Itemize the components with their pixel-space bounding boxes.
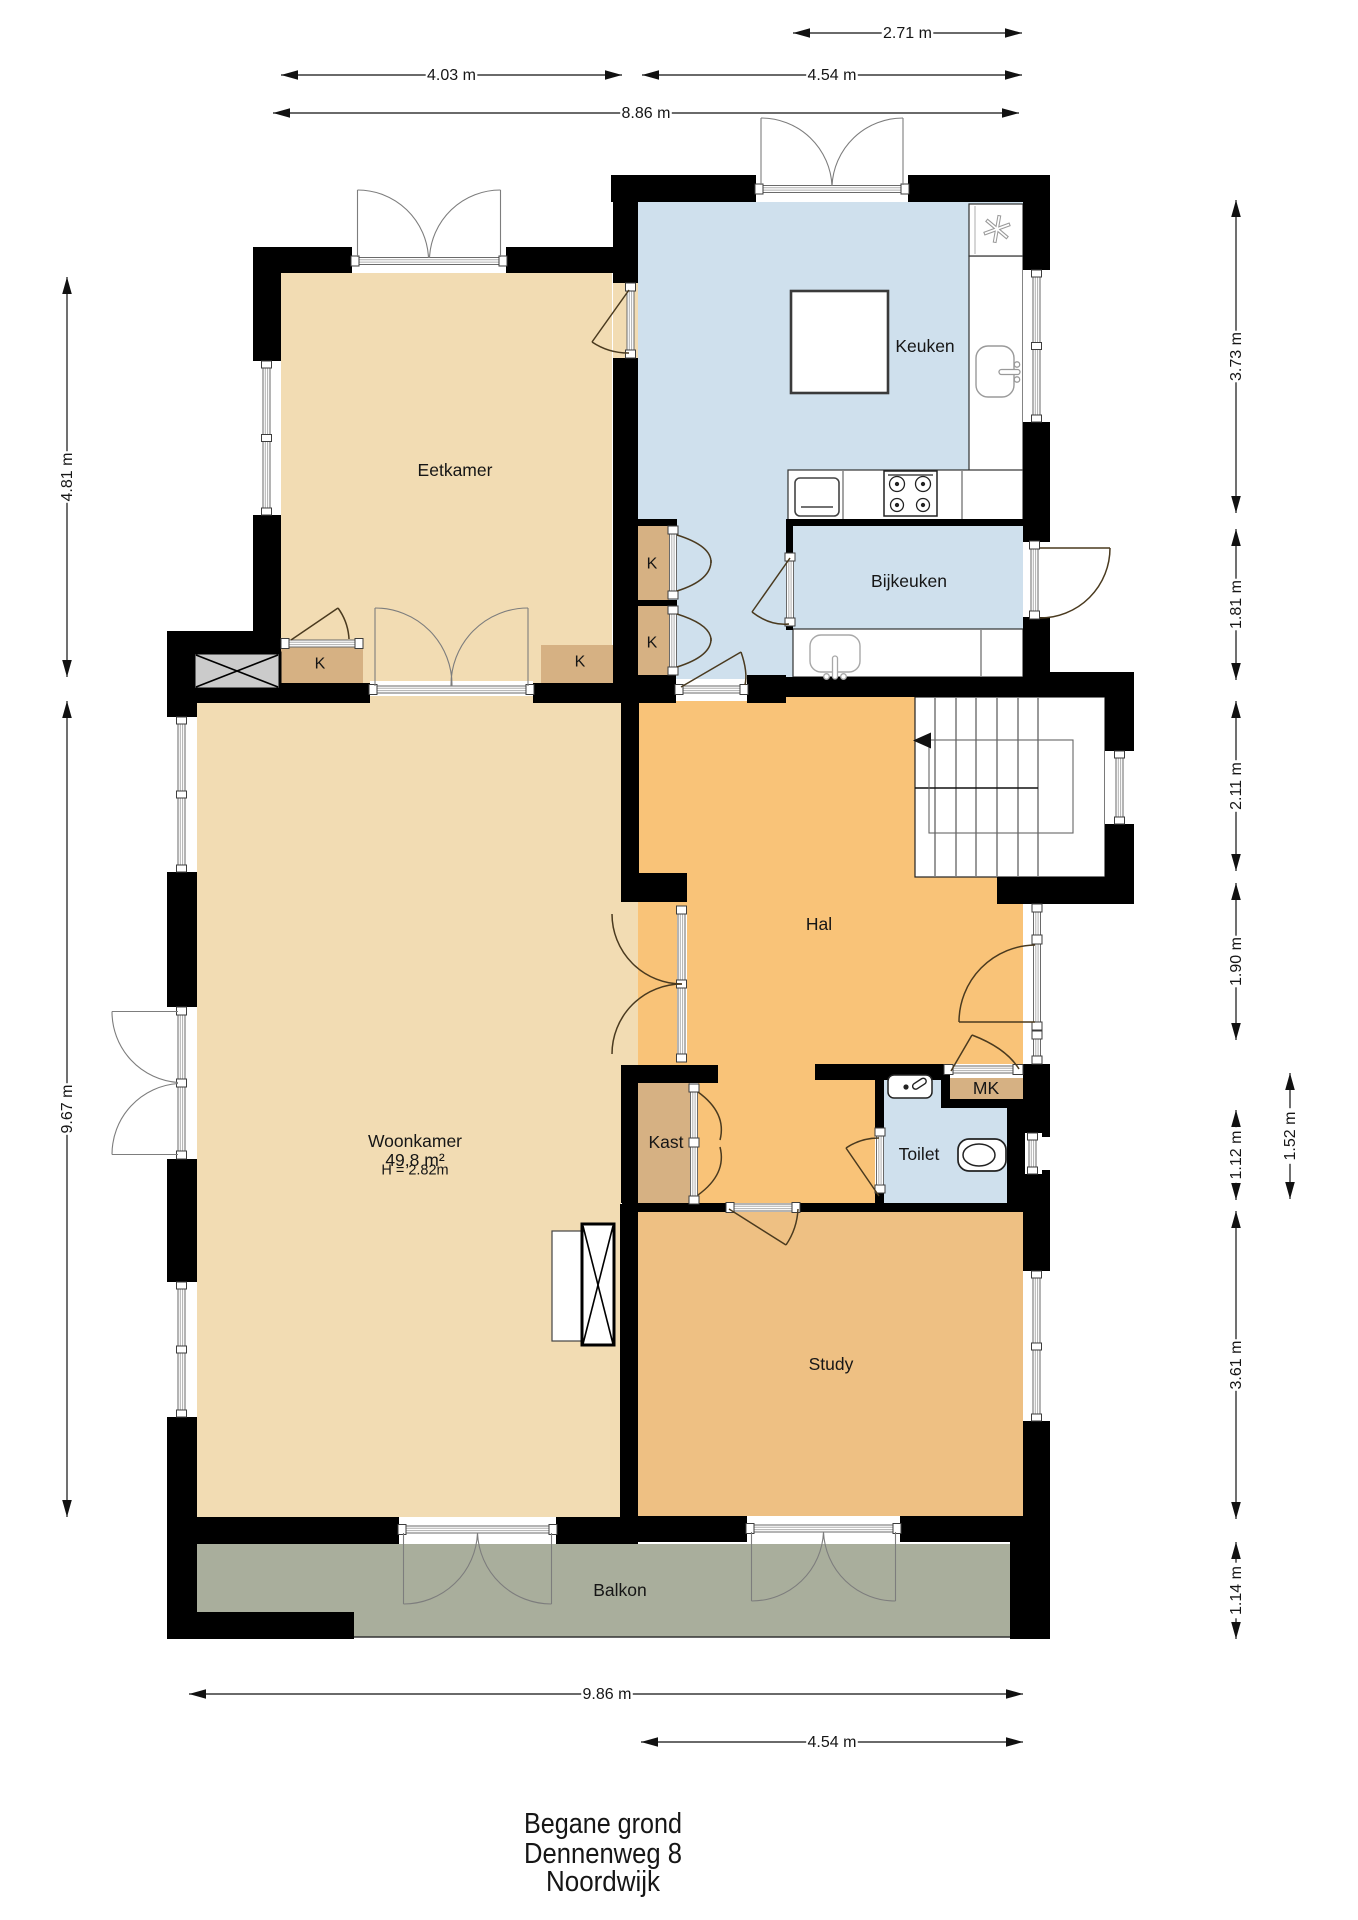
svg-text:Hal: Hal bbox=[806, 914, 832, 934]
svg-text:1.12 m: 1.12 m bbox=[1228, 1131, 1245, 1180]
svg-text:3.61 m: 3.61 m bbox=[1228, 1341, 1245, 1390]
svg-text:Woonkamer: Woonkamer bbox=[368, 1131, 462, 1151]
svg-text:H = 2.82m: H = 2.82m bbox=[381, 1163, 448, 1179]
svg-text:4.54 m: 4.54 m bbox=[808, 67, 857, 84]
svg-text:Study: Study bbox=[809, 1354, 854, 1374]
svg-text:K: K bbox=[315, 656, 326, 673]
svg-text:1.81 m: 1.81 m bbox=[1228, 580, 1245, 629]
svg-text:Keuken: Keuken bbox=[895, 336, 954, 356]
svg-text:4.81 m: 4.81 m bbox=[59, 453, 76, 502]
svg-text:Kast: Kast bbox=[648, 1132, 683, 1152]
svg-text:Noordwijk: Noordwijk bbox=[546, 1866, 660, 1898]
svg-text:K: K bbox=[647, 556, 658, 573]
svg-text:1.52 m: 1.52 m bbox=[1282, 1112, 1299, 1161]
svg-text:Bijkeuken: Bijkeuken bbox=[871, 571, 947, 591]
svg-text:3.73 m: 3.73 m bbox=[1228, 332, 1245, 381]
svg-text:2.11 m: 2.11 m bbox=[1228, 762, 1245, 810]
svg-text:1.14 m: 1.14 m bbox=[1228, 1566, 1245, 1615]
svg-text:Begane grond: Begane grond bbox=[524, 1808, 682, 1840]
svg-text:9.67 m: 9.67 m bbox=[59, 1085, 76, 1134]
svg-text:Eetkamer: Eetkamer bbox=[418, 460, 493, 480]
svg-text:Balkon: Balkon bbox=[593, 1580, 647, 1600]
svg-text:4.03 m: 4.03 m bbox=[427, 67, 476, 84]
svg-text:Toilet: Toilet bbox=[899, 1144, 940, 1164]
svg-text:K: K bbox=[647, 635, 658, 652]
svg-text:4.54 m: 4.54 m bbox=[808, 1734, 857, 1751]
svg-text:9.86 m: 9.86 m bbox=[583, 1686, 632, 1703]
svg-text:K: K bbox=[575, 654, 586, 671]
svg-text:8.86 m: 8.86 m bbox=[622, 105, 671, 122]
svg-text:2.71 m: 2.71 m bbox=[883, 25, 932, 42]
svg-text:1.90 m: 1.90 m bbox=[1228, 937, 1245, 986]
svg-text:MK: MK bbox=[973, 1078, 1000, 1098]
